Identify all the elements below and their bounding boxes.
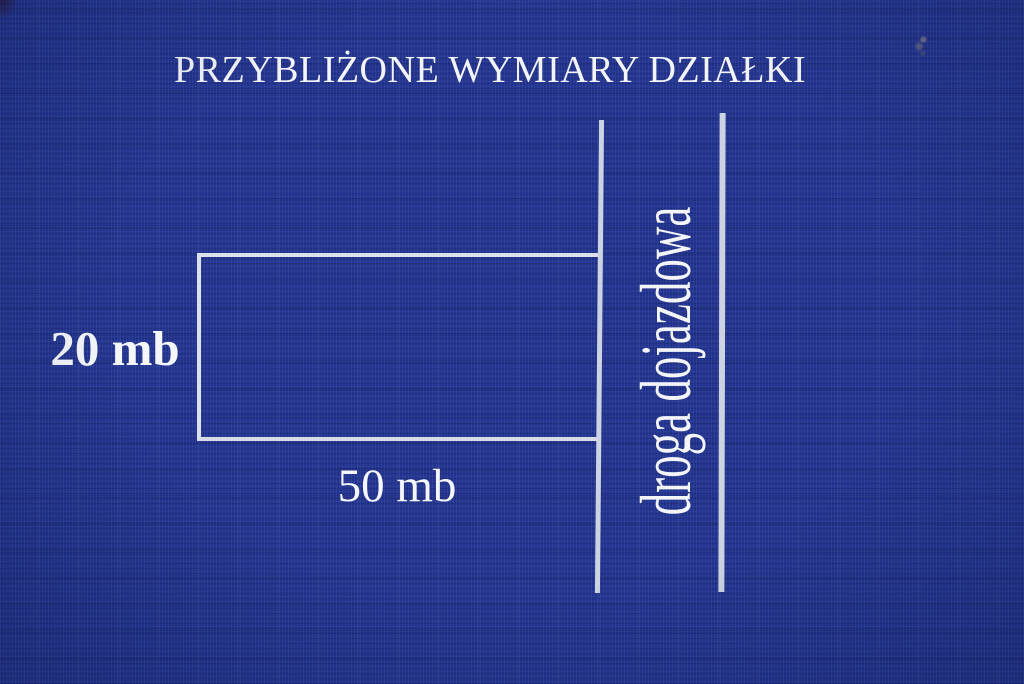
road-edge-line-left: [595, 120, 604, 593]
scan-corner-mark: [0, 0, 16, 20]
road-edge-line-right: [718, 113, 725, 592]
diagram-title: PRZYBLIŻONE WYMIARY DZIAŁKI: [174, 51, 774, 89]
plot-dimensions-diagram: PRZYBLIŻONE WYMIARY DZIAŁKI 20 mb 50 mb …: [0, 0, 1024, 684]
scan-smudge-mark: [909, 33, 933, 59]
plot-width-dimension-label: 50 mb: [317, 463, 477, 510]
access-road-label: droga dojazdowa: [629, 191, 703, 531]
plot-height-dimension-label: 20 mb: [35, 324, 195, 373]
plot-rectangle: [197, 253, 601, 441]
